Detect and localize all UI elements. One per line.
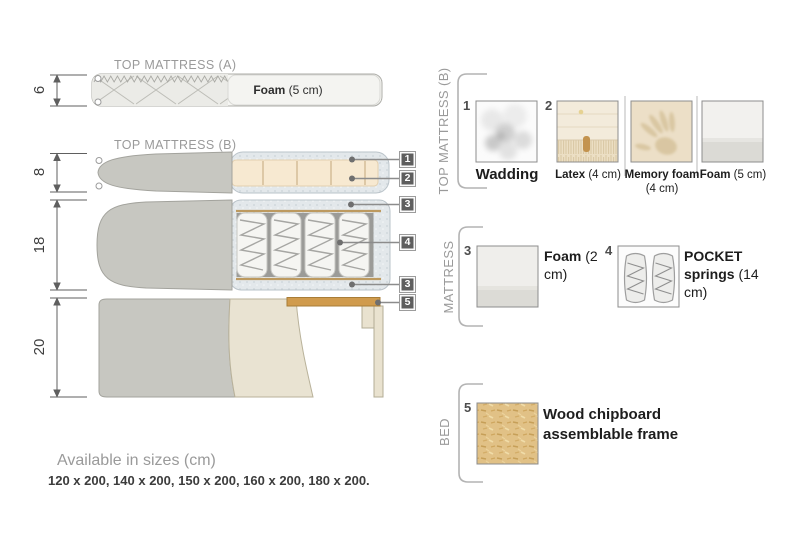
wood-chipboard-label: Wood chipboard assemblable frame xyxy=(543,405,728,444)
dimension-20: 20 xyxy=(31,329,48,365)
foam-5cm-label: Foam (5 cm) xyxy=(695,168,771,182)
callout-tag-1: 1 xyxy=(399,151,416,168)
swatch-foam-5cm xyxy=(702,101,763,162)
available-sizes-list: 120 x 200, 140 x 200, 150 x 200, 160 x 2… xyxy=(48,473,370,488)
swatch-memory-foam xyxy=(631,101,692,162)
top-mattress-a-shape xyxy=(92,74,382,106)
legend-num-5: 5 xyxy=(464,400,471,415)
legend-section-top-mattress-b: TOP MATTRESS (B) xyxy=(436,66,451,196)
callout-tag-4: 4 xyxy=(399,234,416,251)
legend-num-3: 3 xyxy=(464,243,471,258)
callout-tag-5: 5 xyxy=(399,294,416,311)
top-mattress-a-title: TOP MATTRESS (A) xyxy=(114,58,236,72)
bed-shape xyxy=(99,298,383,398)
pocket-springs-label: POCKET springs (14 cm) xyxy=(684,247,770,302)
legend-num-2: 2 xyxy=(545,98,552,113)
swatch-foam-2cm xyxy=(477,246,538,307)
bed-leg xyxy=(374,306,383,397)
dimension-8: 8 xyxy=(31,157,48,187)
swatch-wadding xyxy=(476,101,537,162)
foam-2cm-label: Foam (2 cm) xyxy=(544,247,606,283)
foam-a-label: Foam (5 cm) xyxy=(240,83,336,97)
dimension-18: 18 xyxy=(31,227,48,263)
top-mattress-b-title: TOP MATTRESS (B) xyxy=(114,138,236,152)
wood-slat xyxy=(287,298,380,307)
latex-label: Latex (4 cm) xyxy=(549,168,627,182)
top-mattress-b-shape xyxy=(96,152,389,193)
swatch-pocket-springs xyxy=(618,246,679,307)
swatch-latex xyxy=(557,101,618,162)
legend-num-4: 4 xyxy=(605,243,612,258)
available-sizes-title: Available in sizes (cm) xyxy=(57,452,216,470)
wadding-label: Wadding xyxy=(470,166,544,185)
legend-section-bed: BED xyxy=(437,402,452,462)
callout-tag-3-top: 3 xyxy=(399,196,416,213)
frame-bracket xyxy=(362,306,374,328)
dimension-lines xyxy=(50,75,87,397)
legend-section-mattress: MATTRESS xyxy=(441,222,456,332)
dimension-6: 6 xyxy=(31,75,48,105)
memory-foam-label: Memory foam (4 cm) xyxy=(624,168,700,197)
callout-tag-3-bottom: 3 xyxy=(399,276,416,293)
swatch-wood-chipboard xyxy=(477,403,538,464)
callout-tag-2: 2 xyxy=(399,170,416,187)
legend-num-1: 1 xyxy=(463,98,470,113)
mattress-shape xyxy=(97,200,390,290)
mattress-construction-diagram: TOP MATTRESS (A) TOP MATTRESS (B) Foam (… xyxy=(0,0,800,533)
